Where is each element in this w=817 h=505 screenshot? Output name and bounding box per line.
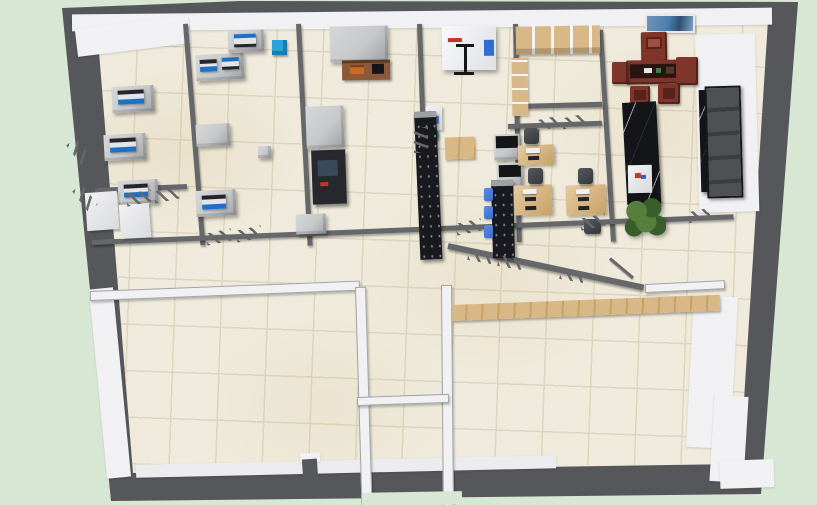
analyzer-instrument (234, 34, 256, 48)
fume-hood (330, 25, 389, 62)
storage-shelves-north (516, 25, 600, 54)
analyzer-instrument (118, 89, 145, 104)
tripod-pole (464, 46, 467, 74)
chamber-logo (448, 38, 462, 42)
analyzer-instrument (202, 194, 227, 209)
keyboard (525, 206, 536, 210)
analyzer-instrument (110, 137, 137, 152)
wooden-floor-mat (445, 136, 476, 159)
chamber-control-panel (484, 40, 494, 56)
keyboard (528, 156, 539, 160)
tea-set-item (656, 68, 661, 73)
analyzer-instrument (200, 59, 218, 72)
mahogany-stool (658, 84, 680, 104)
blue-lab-stool (484, 206, 493, 219)
mahogany-side-chair (612, 62, 628, 84)
mahogany-side-chair (676, 57, 698, 85)
partition-window (414, 127, 428, 153)
environmental-test-chamber (442, 26, 496, 70)
lab-bench (103, 133, 146, 161)
storage-shelves-west (511, 58, 528, 116)
cabinet-top-face (496, 136, 518, 149)
white-cabinet (119, 203, 151, 239)
keyboard (578, 206, 589, 210)
monitor (523, 189, 537, 194)
mahogany-throne-chair (641, 32, 668, 62)
cabinet-top-face (499, 165, 521, 178)
blue-storage-cube (272, 40, 287, 55)
display-pedestal (628, 165, 652, 193)
blue-lab-stool (484, 188, 493, 201)
cabinet-black-top (494, 134, 521, 161)
machine-button (320, 182, 328, 186)
office-desk (513, 184, 552, 215)
machine-screen (317, 160, 338, 177)
stool-inlay (634, 90, 646, 100)
monitor (526, 148, 540, 153)
tea-table-top (630, 64, 678, 79)
wall-stub-south (302, 459, 319, 494)
office-chair (528, 168, 543, 184)
black-testing-machine (311, 149, 347, 204)
pedestal-item-blue (641, 175, 646, 179)
tripod-base (454, 72, 474, 75)
console-display (372, 64, 384, 74)
keyboard (578, 197, 589, 201)
console-cabinet (342, 60, 390, 81)
southeast-wall-step-2 (720, 459, 775, 489)
stool-inlay (663, 88, 675, 99)
vestibule-exit-opening (362, 491, 462, 505)
blue-lab-stool (484, 225, 493, 238)
analyzer-instrument (222, 57, 240, 70)
wall-picture (645, 14, 695, 33)
potted-plant (624, 195, 666, 241)
epoxy-office-bench (491, 180, 515, 259)
mahogany-tea-table (626, 60, 682, 85)
office-desk (565, 184, 606, 215)
lab-bench (195, 123, 230, 147)
monitor (576, 189, 590, 194)
lab-bench (195, 53, 244, 81)
lab-bench (228, 29, 265, 52)
lab-bench (111, 85, 154, 113)
entrance-door (705, 86, 744, 199)
small-gray-cube (258, 146, 271, 158)
lab-bench (195, 189, 236, 217)
lab-bench (296, 213, 327, 234)
office-chair (578, 168, 593, 184)
tea-set-item (666, 67, 674, 74)
keyboard (525, 197, 536, 201)
floorplan-render (0, 0, 817, 505)
office-desk (518, 144, 555, 165)
console-instrument (350, 65, 364, 74)
throne-inlay (646, 37, 662, 49)
tea-set-item (644, 68, 652, 73)
lab-bench-large (305, 105, 344, 148)
